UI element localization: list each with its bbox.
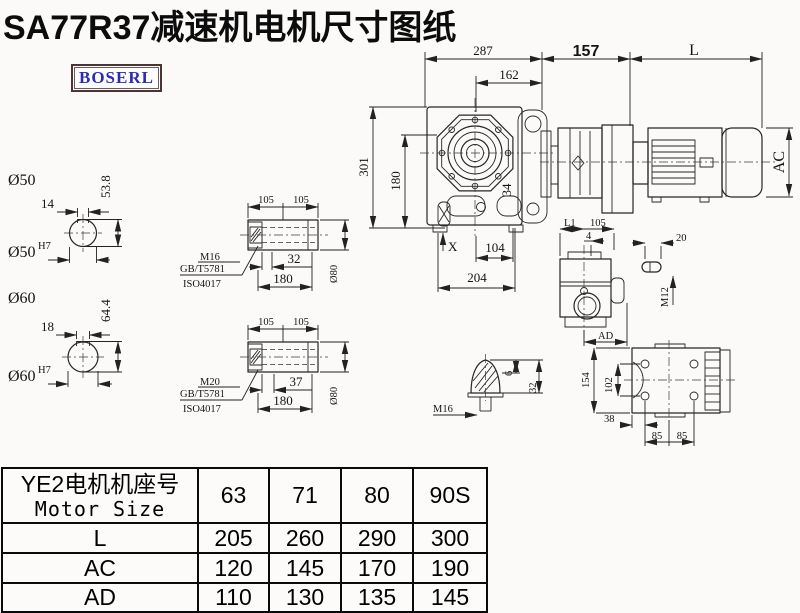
dim-total-height: 301 xyxy=(356,157,371,177)
technical-drawing: 287 162 157 L AC 301 180 34 X 104 204 xyxy=(0,0,800,460)
table-cell: 120 xyxy=(198,553,269,583)
dim-base-center: 104 xyxy=(485,240,505,255)
hollow-bot-seg-a: 105 xyxy=(258,317,274,328)
rear-height: 154 xyxy=(581,372,592,389)
shaft50-key-width: 14 xyxy=(41,196,55,211)
table-row-L: L 205 260 290 300 xyxy=(2,523,487,553)
hollow-top-outer-dia: Ø80 xyxy=(329,265,340,283)
rear-foot-view: 154 102 38 85 85 xyxy=(581,340,736,446)
table-cell: 145 xyxy=(269,553,341,583)
motor-adapter xyxy=(558,125,648,213)
key-length: 20 xyxy=(676,233,687,244)
hollow-bot-bolt: M20 xyxy=(200,377,220,388)
key-thread: M12 xyxy=(660,287,671,307)
dim-adapter-length: 157 xyxy=(573,43,600,60)
plug-height: 32 xyxy=(528,383,539,394)
side-view-4: 4 xyxy=(586,231,592,242)
dim-base-width: 204 xyxy=(467,270,487,285)
hollow-shaft-view-bottom: 105 105 M20 GB/T5781 ISO4017 37 180 Ø80 xyxy=(180,317,349,415)
shaft50-bore-tol: H7 xyxy=(38,241,51,252)
shaft60-diameter: Ø60 xyxy=(8,290,36,307)
hollow-top-total-len: 180 xyxy=(273,271,293,286)
side-view-105: 105 xyxy=(590,218,606,229)
plug-thread: M16 xyxy=(433,404,453,415)
rear-hole-span-v: 102 xyxy=(604,377,615,393)
shaft60-key-height: 64.4 xyxy=(98,299,113,322)
table-cell: 145 xyxy=(413,583,487,612)
hollow-bot-seg-b: 105 xyxy=(293,317,309,328)
table-header-cn: YE2电机机座号 xyxy=(3,471,197,497)
hollow-bot-std2: ISO4017 xyxy=(183,404,221,415)
table-row-AC: AC 120 145 170 190 xyxy=(2,553,487,583)
hollow-bot-std1: GB/T5781 xyxy=(180,389,225,400)
table-col-80: 80 xyxy=(341,468,413,523)
shaft60-bore: Ø60 xyxy=(8,368,36,385)
rear-edge-offset: 38 xyxy=(604,414,615,425)
dim-flange-offset: 162 xyxy=(499,67,519,82)
dim-motor-length: L xyxy=(689,42,699,59)
hollow-top-bolt: M16 xyxy=(200,252,220,263)
row-label-L: L xyxy=(2,523,198,553)
shaft-section-60: Ø60 18 64.4 Ø60 H7 xyxy=(8,290,122,387)
table-col-63: 63 xyxy=(198,468,269,523)
dim-overall-width: 287 xyxy=(473,43,493,58)
hollow-top-seg-b: 105 xyxy=(293,195,309,206)
oil-plug xyxy=(438,202,450,226)
dim-side: 34 xyxy=(499,183,514,197)
dim-motor-height: AC xyxy=(771,151,788,173)
table-cell: 300 xyxy=(413,523,487,553)
rear-hole-span-a: 85 xyxy=(652,431,663,442)
dim-axis-height: 180 xyxy=(388,171,403,191)
shaft60-key-width: 18 xyxy=(41,319,54,334)
table-header-en: Motor Size xyxy=(3,497,197,521)
rear-hole-span-b: 85 xyxy=(677,431,688,442)
shaft50-diameter: Ø50 xyxy=(8,172,36,189)
main-dimension-lines xyxy=(369,52,793,292)
table-cell: 260 xyxy=(269,523,341,553)
side-view-ad: AD xyxy=(598,331,614,342)
drawing-sheet: SA77R37减速机电机尺寸图纸 BOSERL xyxy=(0,0,800,613)
table-cell: 290 xyxy=(341,523,413,553)
table-cell: 170 xyxy=(341,553,413,583)
hollow-top-bolt-len: 32 xyxy=(288,251,301,266)
table-cell: 190 xyxy=(413,553,487,583)
row-label-AC: AC xyxy=(2,553,198,583)
plug-tip-len: 6 xyxy=(504,371,515,376)
hollow-bot-outer-dia: Ø80 xyxy=(329,387,340,405)
side-view-l1: L1 xyxy=(564,218,576,229)
gearbox-side-view: L1 105 4 AD xyxy=(560,218,627,346)
table-header-label: YE2电机机座号 Motor Size xyxy=(2,468,198,523)
hollow-shaft-view-top: 105 105 M16 GB/T5781 ISO4017 32 180 Ø80 xyxy=(180,195,349,291)
motor-size-table: YE2电机机座号 Motor Size 63 71 80 90S L 205 2… xyxy=(1,467,488,613)
table-header-row: YE2电机机座号 Motor Size 63 71 80 90S xyxy=(2,468,487,523)
table-col-71: 71 xyxy=(269,468,341,523)
hollow-top-std1: GB/T5781 xyxy=(180,264,225,275)
motor xyxy=(540,128,775,202)
table-row-AD: AD 110 130 135 145 xyxy=(2,583,487,612)
hollow-bot-total-len: 180 xyxy=(273,393,293,408)
shaft50-key-height: 53.8 xyxy=(98,175,113,198)
hollow-top-seg-a: 105 xyxy=(258,195,274,206)
breather-plug-view: M16 6 32 xyxy=(433,354,543,415)
shaft50-bore: Ø50 xyxy=(8,244,36,261)
table-cell: 205 xyxy=(198,523,269,553)
table-col-90s: 90S xyxy=(413,468,487,523)
shaft-section-50: Ø50 14 53.8 Ø50 H7 xyxy=(8,172,122,263)
oil-plug-mark: X xyxy=(448,239,458,254)
table-cell: 110 xyxy=(198,583,269,612)
table-cell: 130 xyxy=(269,583,341,612)
table-cell: 135 xyxy=(341,583,413,612)
row-label-AD: AD xyxy=(2,583,198,612)
shaft60-bore-tol: H7 xyxy=(38,365,51,376)
hollow-bot-bolt-len: 37 xyxy=(290,374,304,389)
hollow-top-std2: ISO4017 xyxy=(183,279,221,290)
key-pin-view: 20 M12 xyxy=(632,233,687,307)
main-assembly-view: 287 162 157 L AC 301 180 34 X 104 204 xyxy=(356,42,793,292)
